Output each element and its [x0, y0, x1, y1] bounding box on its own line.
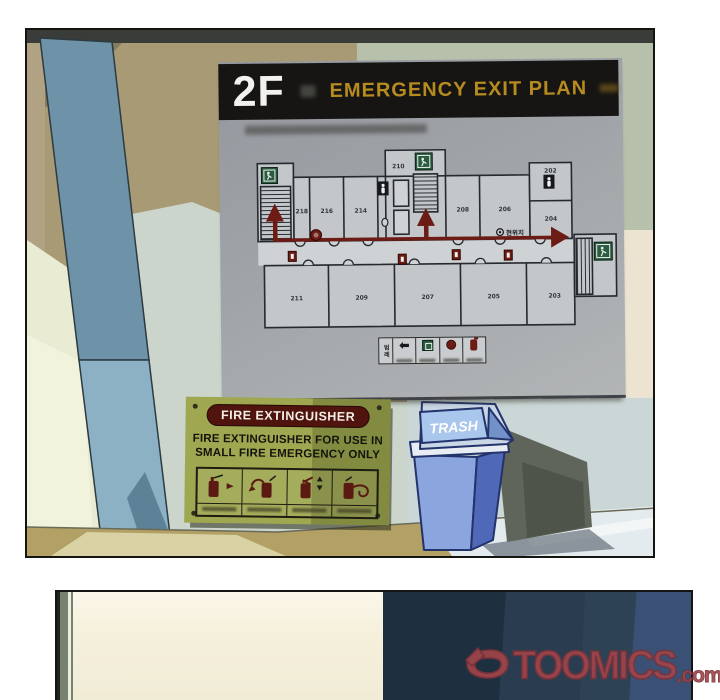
sweep-side-pictogram — [332, 470, 376, 505]
comic-panel-hallway: TRASH 2F EMERGENCY EXIT PLAN — [25, 28, 655, 558]
toomics-swoosh-icon — [464, 646, 510, 688]
rooms-bottom — [264, 262, 575, 327]
room-label: 210 — [392, 163, 405, 170]
restroom-icon — [377, 181, 388, 195]
screw-hole — [377, 405, 382, 410]
fire-sign-line2: SMALL FIRE EMERGENCY ONLY — [195, 446, 380, 463]
exit-sign-icon — [594, 242, 612, 260]
floor-plan: 현위치 218 216 214 210 208 206 202 204 211 … — [247, 146, 621, 332]
legend-extinguisher — [463, 337, 486, 362]
center-stairs — [413, 174, 437, 212]
extinguisher-icon — [471, 339, 478, 350]
toilet-fixture — [382, 218, 388, 226]
trash-body-front — [414, 455, 477, 550]
current-location-label: 현위치 — [506, 228, 524, 237]
plan-legend: 범례 ⬅ — [378, 336, 486, 364]
comic-page: TRASH 2F EMERGENCY EXIT PLAN — [0, 0, 720, 700]
exit-plan-board: 2F EMERGENCY EXIT PLAN — [218, 58, 626, 402]
legend-evac-direction: ⬅ — [393, 338, 417, 363]
aim-nozzle-pictogram — [242, 469, 286, 504]
ceiling-edge — [27, 30, 655, 43]
exit-sign-icon — [422, 340, 433, 351]
squeeze-lever-pictogram — [287, 470, 331, 505]
room-label: 218 — [296, 208, 309, 215]
blurred-caption — [420, 359, 436, 362]
blurred-caption — [443, 359, 459, 362]
board-header: 2F EMERGENCY EXIT PLAN — [218, 60, 619, 120]
blurred-text — [599, 84, 618, 92]
legend-title: 범례 — [379, 338, 393, 363]
door-frame-edge — [57, 592, 73, 700]
restroom-icon — [543, 175, 554, 189]
instruction-step — [287, 470, 333, 517]
instruction-strip — [195, 466, 379, 519]
fire-sign-banner: FIRE EXTINGUISHER — [207, 404, 370, 428]
blurred-caption — [337, 509, 371, 513]
room-label: 204 — [545, 216, 558, 223]
legend-hydrant — [440, 338, 464, 363]
fire-extinguisher-sign: FIRE EXTINGUISHER FIRE EXTINGUISHER FOR … — [184, 397, 391, 526]
room-label: 205 — [487, 293, 500, 300]
pull-pin-pictogram — [197, 468, 241, 503]
blurred-caption — [202, 507, 236, 511]
room-label: 203 — [548, 293, 561, 300]
watermark-suffix: .com — [677, 664, 720, 688]
left-arrow-icon: ⬅ — [399, 340, 409, 350]
room-label: 214 — [354, 208, 367, 215]
exit-sign-icon — [415, 153, 432, 170]
right-stairs — [576, 238, 593, 294]
watermark-brand: TOOMICS — [513, 646, 676, 686]
room-label: 216 — [320, 208, 333, 215]
room-label: 202 — [544, 168, 557, 175]
legend-exit — [416, 338, 440, 363]
room-label: 209 — [355, 295, 368, 302]
instruction-step — [197, 468, 243, 515]
board-title: EMERGENCY EXIT PLAN — [329, 77, 587, 103]
room-label: 211 — [290, 295, 303, 302]
room-label: 206 — [498, 206, 511, 213]
elevator — [393, 180, 408, 206]
toomics-watermark: TOOMICS .com — [464, 637, 720, 695]
exit-sign-icon — [261, 168, 277, 184]
instruction-step — [332, 470, 377, 517]
current-location-marker: 현위치 — [497, 228, 524, 237]
lit-wall — [73, 592, 407, 700]
blurred-caption — [396, 359, 412, 362]
elevator — [394, 210, 409, 234]
alarm-circle-icon — [446, 340, 456, 350]
screw-hole — [193, 404, 198, 409]
room-label: 207 — [421, 294, 434, 301]
blurred-caption — [247, 508, 281, 512]
blurred-caption — [292, 508, 326, 512]
blurred-text — [301, 85, 316, 97]
floor-label: 2F — [232, 70, 285, 114]
room-label: 208 — [456, 207, 469, 214]
blurred-caption — [466, 358, 482, 361]
blurred-subtitle — [245, 124, 427, 135]
instruction-step — [242, 469, 288, 516]
trash-label: TRASH — [429, 417, 479, 436]
